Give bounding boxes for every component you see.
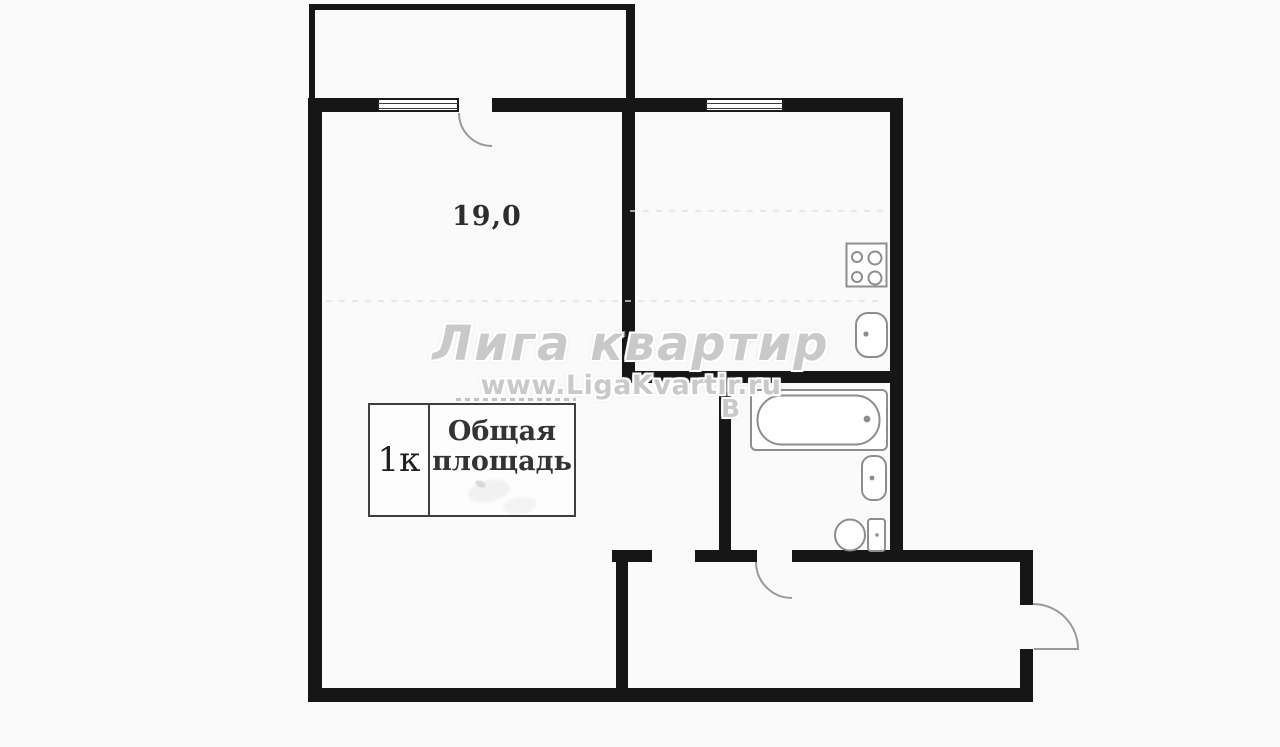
door-arc-icon-bathroom	[756, 562, 792, 598]
legend-total-area-line1: Общая	[430, 417, 574, 447]
kitchen-sink-icon	[856, 313, 887, 357]
watermark-stray-letter: В	[721, 396, 740, 421]
door-arc-icon-entrance	[1033, 604, 1078, 649]
legend-total-area-line2: площадь	[430, 447, 574, 477]
legend-box: 1к Общая площадь	[368, 403, 576, 517]
washbasin-icon	[862, 456, 886, 500]
stove-icon	[847, 244, 887, 287]
floor-plan: 19,0 1к Общая площадь Лига квартир www.L…	[0, 0, 1280, 747]
room-area-label: 19,0	[452, 201, 522, 232]
legend-rooms-label: 1к	[370, 405, 430, 515]
door-arc-icon-balcony	[459, 113, 492, 146]
legend-total-area: Общая площадь	[430, 405, 574, 515]
toilet-icon	[835, 519, 885, 551]
watermark-brand: Лига квартир	[432, 320, 829, 368]
